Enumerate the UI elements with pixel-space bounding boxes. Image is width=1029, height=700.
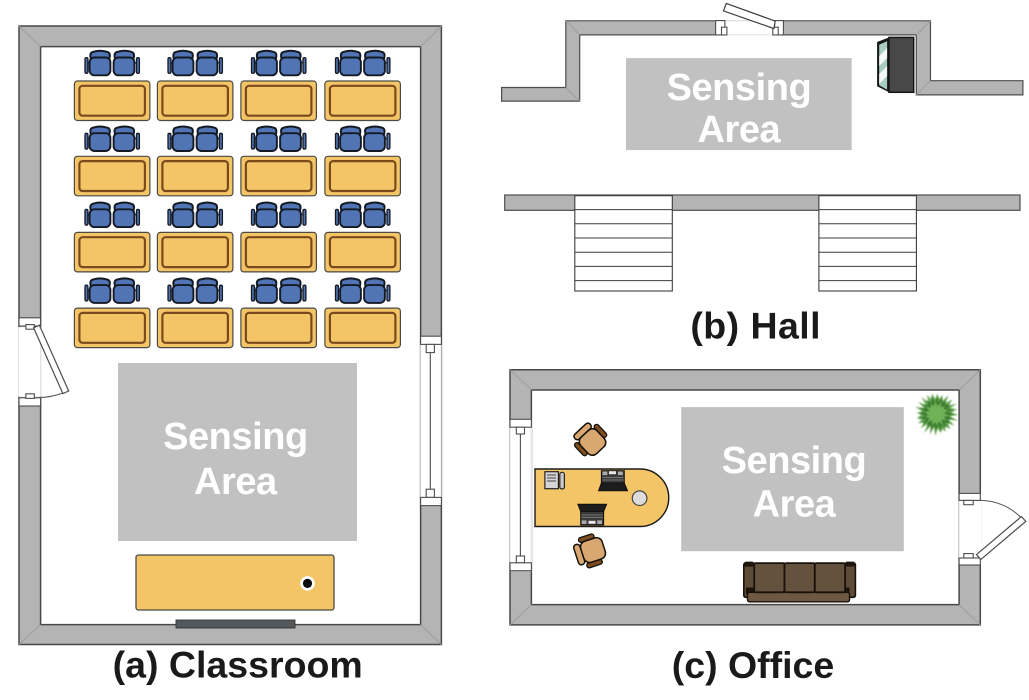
svg-text:(b) Hall: (b) Hall bbox=[690, 305, 821, 347]
svg-text:(a) Classroom: (a) Classroom bbox=[113, 643, 363, 685]
svg-text:Area: Area bbox=[753, 484, 837, 526]
svg-text:Area: Area bbox=[698, 109, 782, 151]
svg-text:(c) Office: (c) Office bbox=[672, 644, 835, 686]
svg-text:Area: Area bbox=[194, 461, 278, 503]
svg-text:Sensing: Sensing bbox=[722, 440, 867, 482]
svg-text:Sensing: Sensing bbox=[667, 67, 812, 109]
svg-text:Sensing: Sensing bbox=[163, 416, 308, 458]
